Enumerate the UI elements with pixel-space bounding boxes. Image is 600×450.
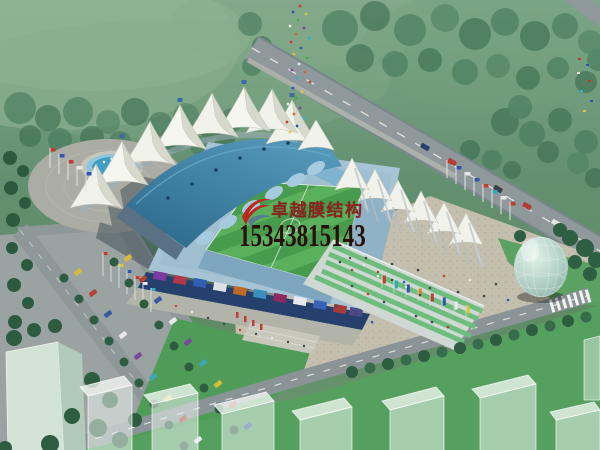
corner-building — [6, 342, 86, 450]
scene-art — [0, 0, 600, 450]
stadium-aerial-rendering: 卓越膜结构 15343815143 — [0, 0, 600, 450]
